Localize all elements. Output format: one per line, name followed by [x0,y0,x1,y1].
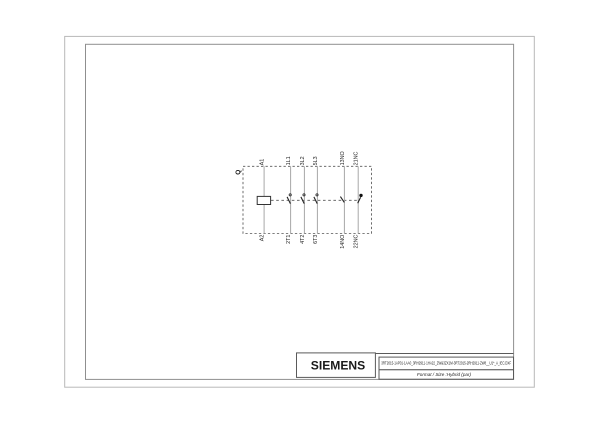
svg-text:SIEMENS: SIEMENS [311,358,366,372]
svg-text:2T1: 2T1 [286,235,292,244]
svg-text:3RT2015-1AP01-1AA0_3RH2911-1HA: 3RT2015-1AP01-1AA0_3RH2911-1HA22_ZW&3ZX1… [381,361,511,366]
svg-text:4T2: 4T2 [300,235,306,244]
svg-text:A2: A2 [260,235,266,242]
svg-text:5L3: 5L3 [313,156,319,165]
svg-text:A1: A1 [260,159,266,166]
svg-text:3L2: 3L2 [300,156,306,165]
svg-text:Q: Q [235,170,242,175]
svg-text:14NO: 14NO [340,235,346,249]
svg-text:6T3: 6T3 [313,235,319,244]
svg-text:1L1: 1L1 [286,156,292,165]
svg-text:13NO: 13NO [340,151,346,165]
svg-text:22NC: 22NC [354,235,360,249]
svg-text:21NC: 21NC [354,152,360,166]
svg-text:Format / Size :Hybrid (par): Format / Size :Hybrid (par) [417,372,472,377]
